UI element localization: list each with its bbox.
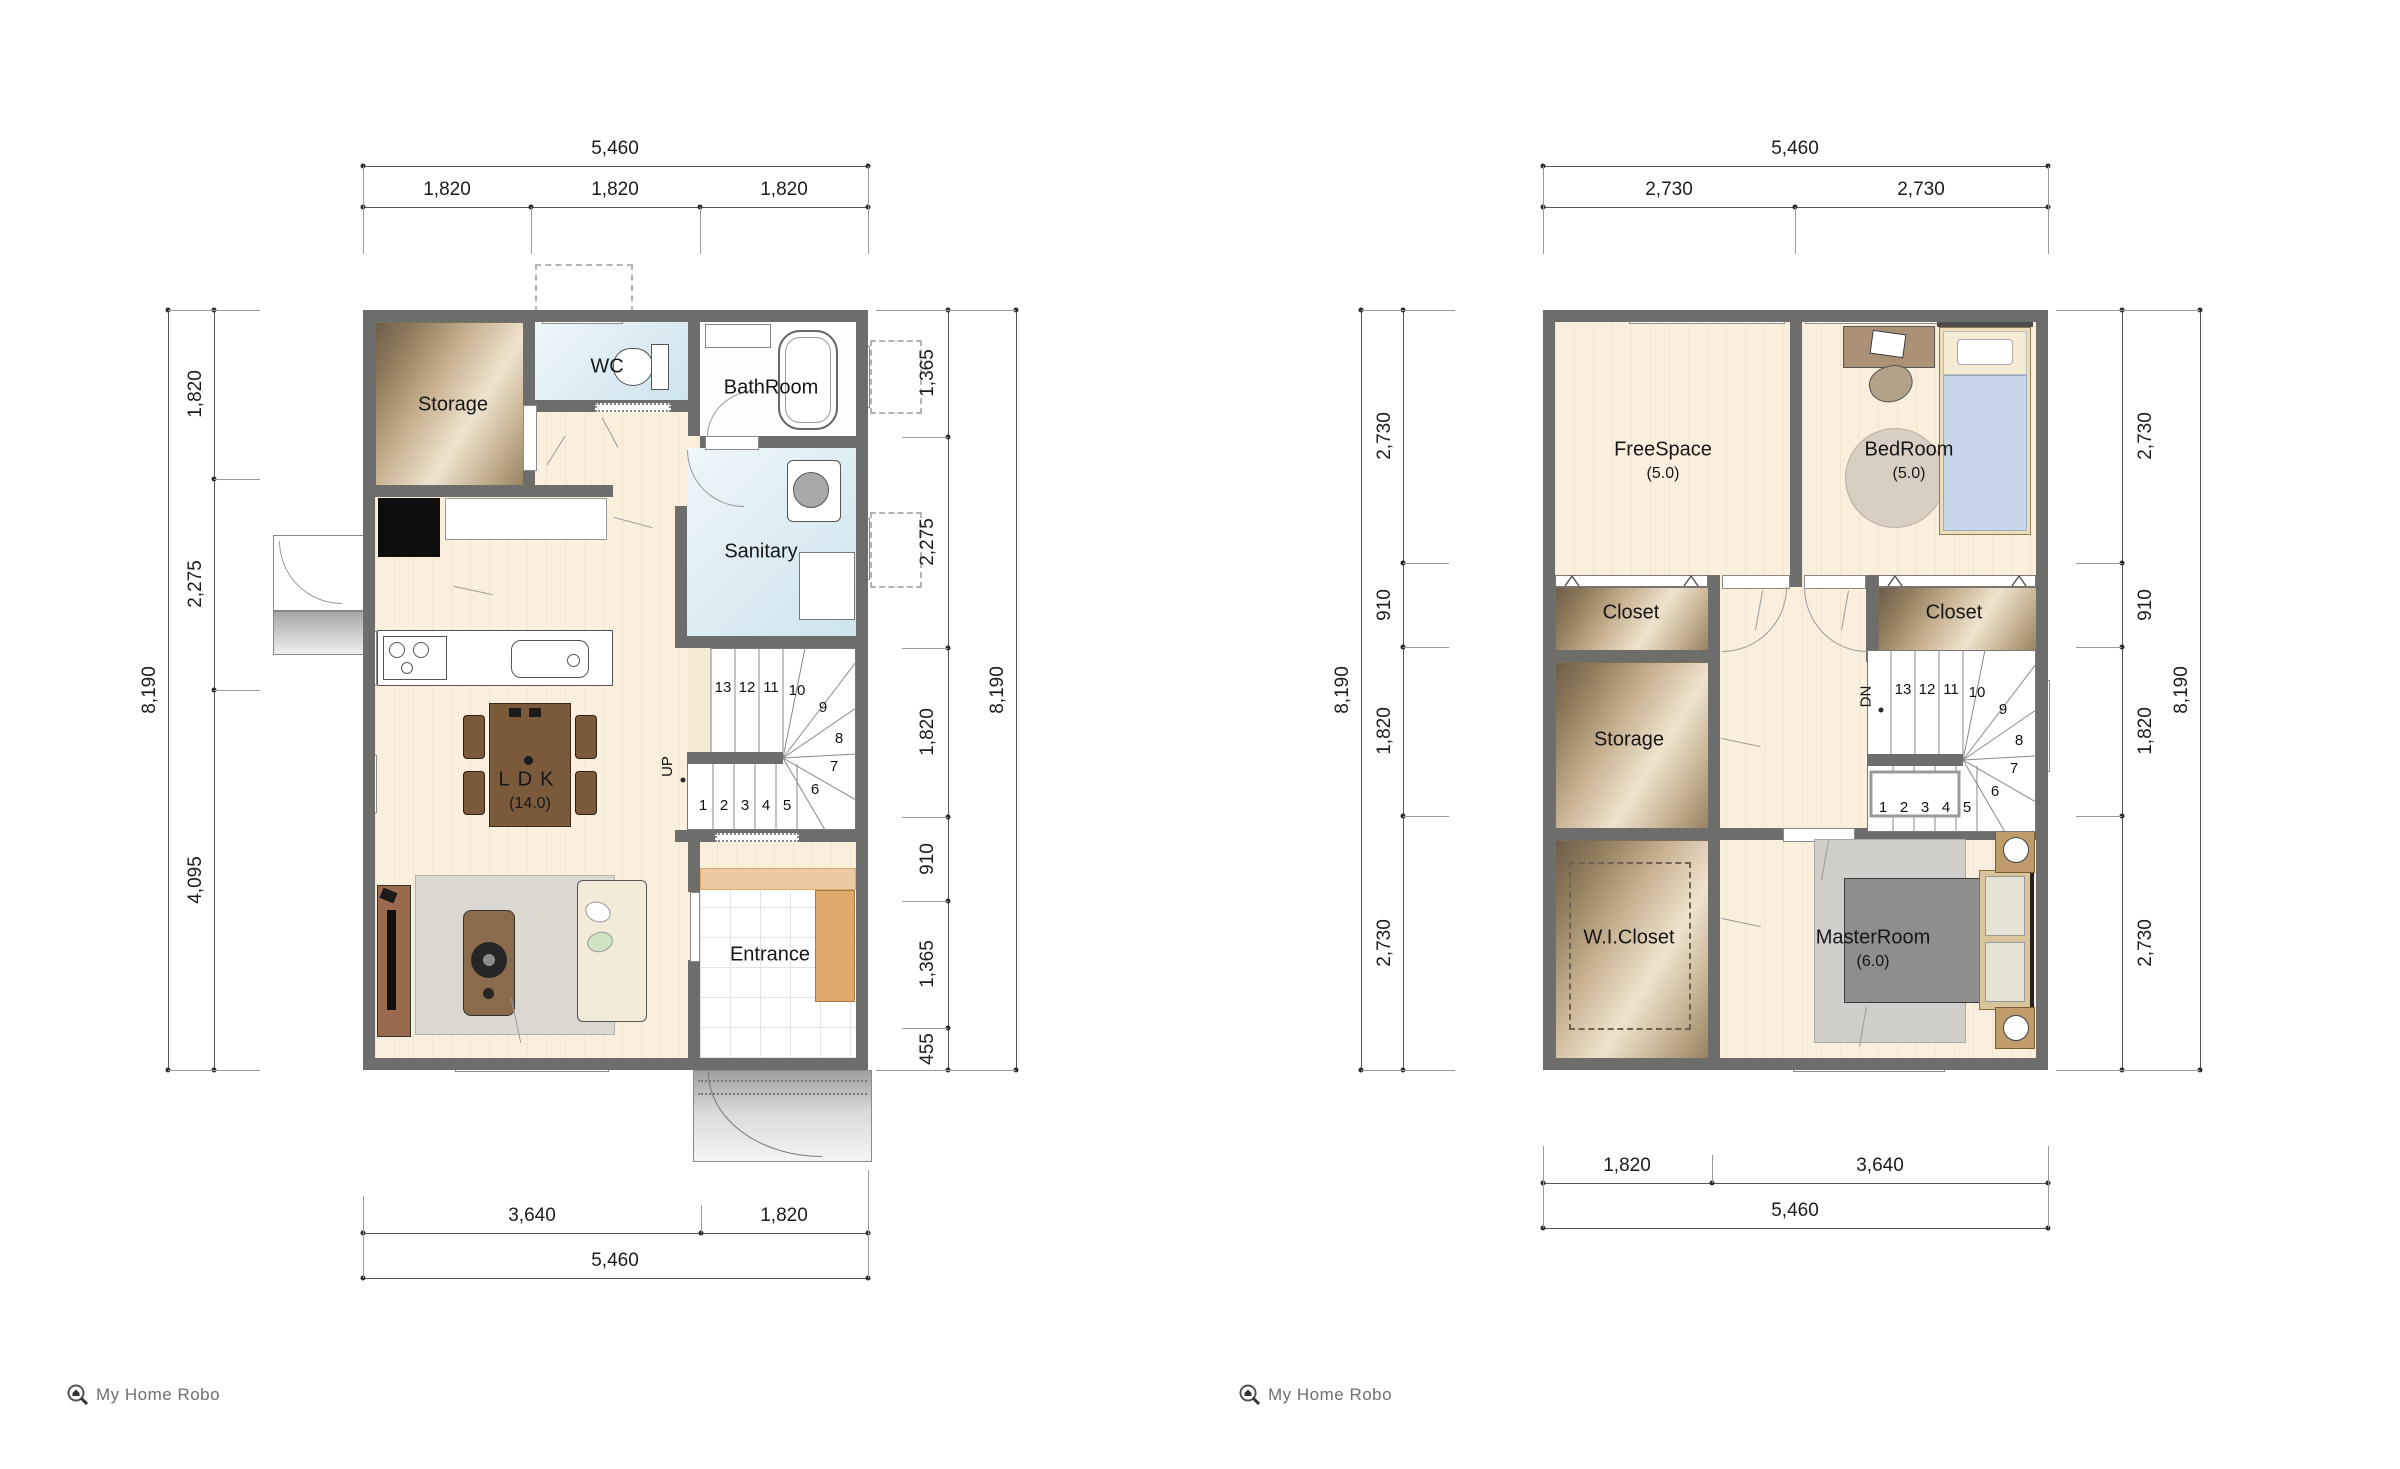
floorplan-canvas: LDK (14.0) [0,0,2400,1469]
window-canopy [535,264,633,312]
house-magnifier-icon [66,1383,90,1407]
window-canopy [870,512,922,588]
house-magnifier-icon [1238,1383,1262,1407]
floor1-exterior-walls [363,310,868,1070]
floor2-plan: 13 12 11 10 9 8 7 6 5 4 3 2 1 DN FreeSpa… [1543,310,2048,1070]
logo-text: My Home Robo [96,1385,220,1405]
floor2-exterior-walls [1543,310,2048,1070]
brand-logo: My Home Robo [1238,1383,1392,1407]
floor1-plan: LDK (14.0) [363,310,868,1070]
brand-logo: My Home Robo [66,1383,220,1407]
side-step [273,611,365,655]
logo-text: My Home Robo [1268,1385,1392,1405]
window-canopy [870,340,922,414]
